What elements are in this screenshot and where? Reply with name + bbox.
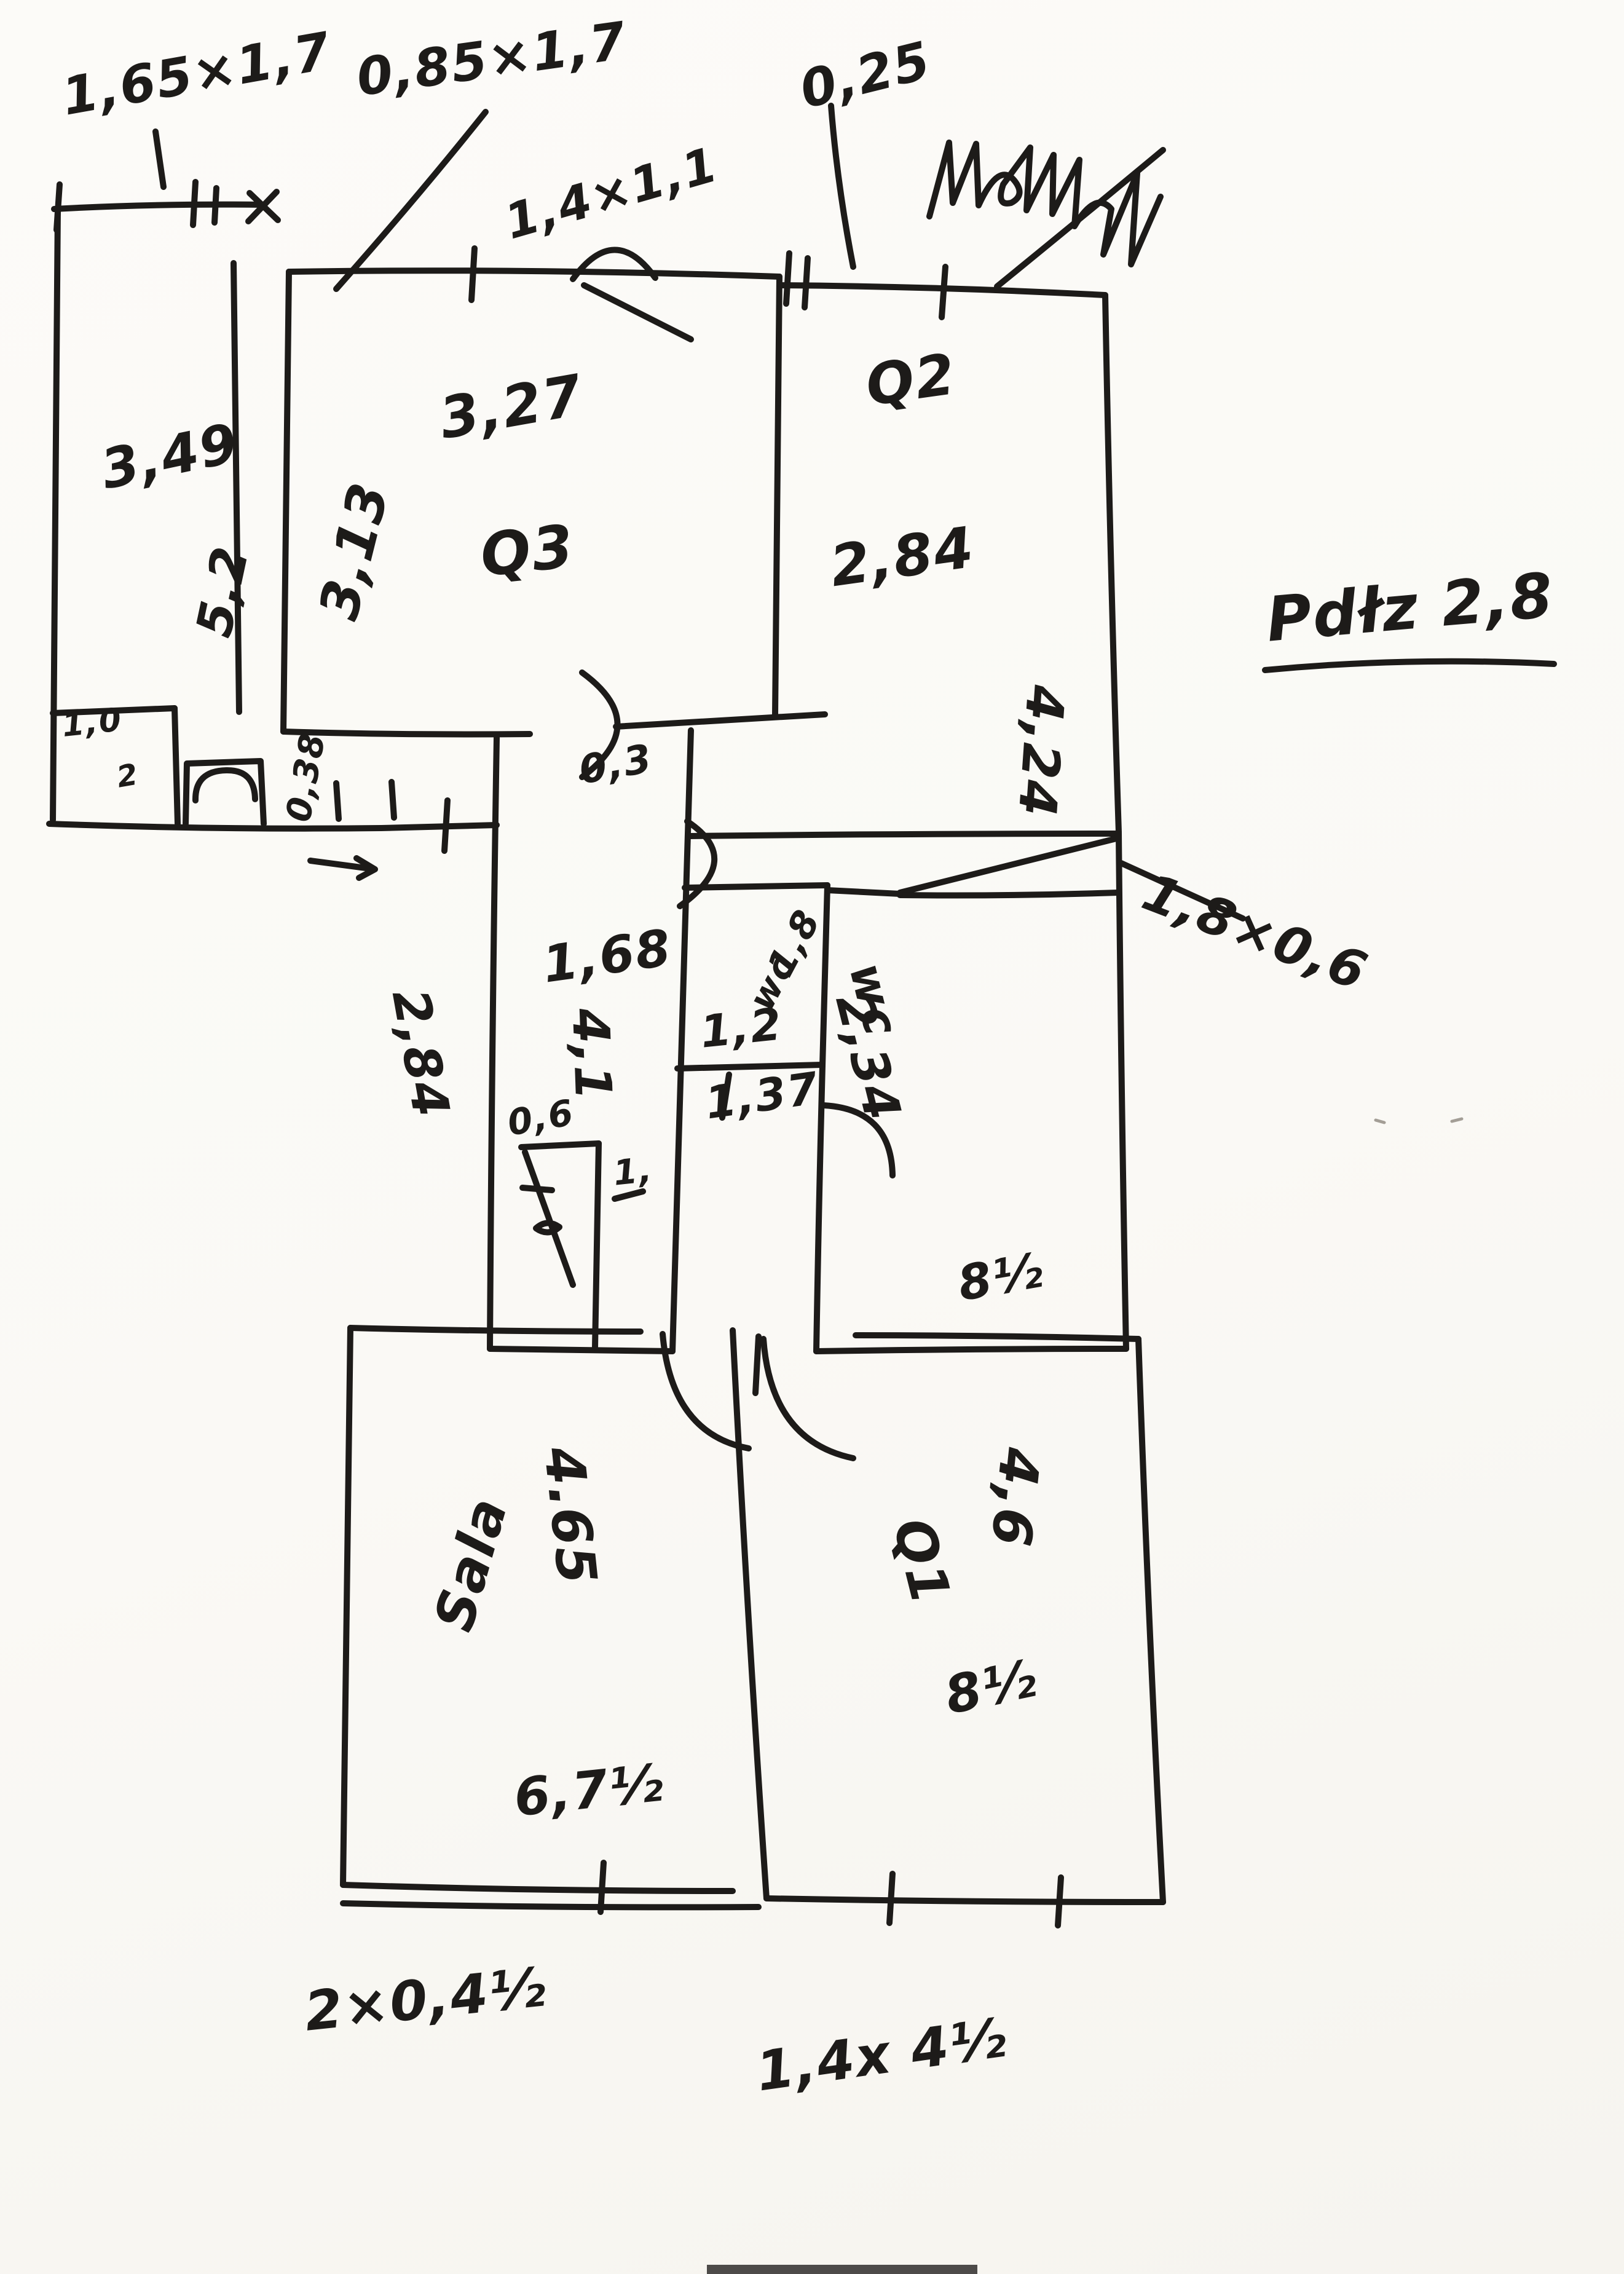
label-room4-name: Q1: [881, 1512, 963, 1611]
label-room2-height: 3,13: [307, 476, 401, 625]
paper-sheet: 1,65×1,7 0,85×1,7 1,4×1,1 0,25 3,49 5,2 …: [0, 0, 1624, 2274]
label-ceiling-note: Pdłz 2,8: [1264, 559, 1557, 655]
label-room1-width: 3,49: [95, 411, 244, 502]
label-wc1-width: 1,2: [698, 998, 785, 1057]
label-closet-width: 0,6: [505, 1091, 578, 1144]
label-alcove-dim: 1,0: [60, 701, 124, 744]
label-hall-width: 1,68: [539, 918, 676, 994]
label-room4-area: 8½: [940, 1648, 1043, 1726]
label-room3-name: Q2: [862, 341, 960, 419]
handwritten-labels: 1,65×1,7 0,85×1,7 1,4×1,1 0,25 3,49 5,2 …: [0, 0, 1624, 2274]
label-closet-note: 1,: [612, 1150, 655, 1193]
label-window-dim: 1,4×1,1: [499, 137, 725, 251]
label-dim-038: 0,38: [278, 729, 333, 824]
label-window-dim: 1,65×1,7: [58, 20, 336, 127]
label-sala-dim: 6,7½: [511, 1753, 667, 1828]
label-room3-width: 2,84: [826, 515, 979, 600]
label-window-dim: 0,85×1,7: [353, 10, 631, 108]
label-sala-width: 4.65: [532, 1444, 609, 1589]
label-room4-height: 4,6: [979, 1445, 1052, 1550]
label-room2-width: 3,27: [435, 362, 588, 452]
label-hall-height: 4,1: [561, 1008, 622, 1102]
label-wall-depth: 0,25: [794, 30, 937, 120]
label-wc2-area: 8½: [954, 1243, 1048, 1313]
label-sala-name: Sala: [422, 1490, 520, 1638]
label-hall-dim-left: 2,84: [380, 985, 460, 1123]
label-dim-03: 0,3: [576, 736, 656, 794]
label-wc1-depth: 1,37: [702, 1062, 822, 1129]
label-room2-name: Q3: [477, 511, 577, 590]
label-room3-height: 4,24: [1007, 683, 1076, 819]
label-bottom-windows-left: 2×0,4½: [302, 1955, 550, 2043]
label-room1-height: 5,2: [185, 541, 260, 642]
label-bottom-windows-right: 1,4x 4½: [752, 2005, 1011, 2103]
label-wardrobe-dim: 1,8×0,6: [1135, 862, 1376, 1002]
label-alcove-dim2: 2: [114, 757, 142, 794]
